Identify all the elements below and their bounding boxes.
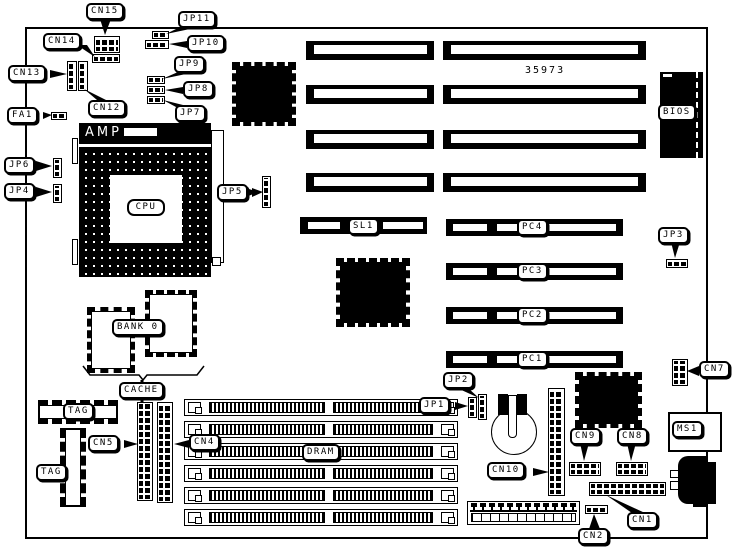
label-jp11: JP11 (178, 11, 216, 28)
label-jp7: JP7 (175, 105, 206, 122)
label-cn9: CN9 (570, 428, 601, 445)
power-connector (467, 501, 580, 525)
amp-window (124, 128, 157, 136)
label-dram: DRAM (302, 444, 340, 461)
jp10-header (145, 40, 169, 49)
chipset-ic-top (232, 62, 296, 126)
label-jp5: JP5 (217, 184, 248, 201)
label-cn5: CN5 (88, 435, 119, 452)
label-cn13: CN13 (8, 65, 46, 82)
motherboard-diagram: AMP CPU 35973 (0, 0, 740, 552)
battery-clip-right (517, 394, 527, 415)
label-jp3: JP3 (658, 227, 689, 244)
cn13-header (67, 61, 77, 91)
bios-pin1-mark (663, 74, 672, 77)
isa-slot-2-short (306, 85, 434, 104)
jp3-jumper (666, 259, 688, 268)
label-tag-left: TAG (36, 464, 67, 481)
power-pin-sockets (471, 513, 576, 522)
label-pc2: PC2 (517, 307, 548, 324)
isa-slot-1-long (443, 41, 646, 60)
cache-sram-chip-left (87, 307, 135, 373)
simm-slot-5 (184, 487, 458, 504)
label-jp8: JP8 (183, 81, 214, 98)
keyboard-pin-upper (670, 470, 679, 478)
label-jp9: JP9 (174, 56, 205, 73)
label-jp4: JP4 (4, 183, 35, 200)
amp-brand-label: AMP (85, 125, 122, 140)
amp-socket-bar: AMP (79, 123, 211, 144)
simm-slot-1 (184, 399, 458, 416)
fa1-jumper (51, 112, 67, 120)
simm-slot-6 (184, 509, 458, 526)
label-bios: BIOS (658, 104, 696, 121)
part-number: 35973 (525, 65, 565, 76)
label-bank0: BANK 0 (112, 319, 164, 336)
isa-slot-3-long (443, 130, 646, 149)
jp9-jumper (147, 76, 165, 84)
cn9-header (569, 462, 601, 476)
cn7-header (672, 359, 688, 386)
keyboard-pin-lower (670, 481, 679, 490)
label-cn15: CN15 (86, 3, 124, 20)
cn14-header (92, 54, 120, 63)
simm-slot-4 (184, 465, 458, 482)
jp2-header (478, 394, 487, 420)
io-controller-ic (575, 372, 642, 428)
power-divider (470, 510, 577, 512)
socket-tab-right-bottom (212, 257, 221, 266)
label-fa1: FA1 (7, 107, 38, 124)
jp8-jumper (147, 86, 165, 94)
cn5-cache-header (137, 402, 153, 501)
socket-tab-left-top (72, 138, 78, 164)
battery-retainer (508, 395, 517, 438)
keyboard-connector-tail (693, 500, 708, 507)
cn4-cache-header (157, 402, 173, 503)
label-cn4: CN4 (189, 434, 220, 451)
label-cn8: CN8 (617, 428, 648, 445)
bios-notch-line (696, 72, 698, 158)
isa-slot-4-short (306, 173, 434, 192)
simm-slot-2 (184, 421, 458, 438)
jp5-header (262, 176, 271, 208)
cn2-jumper (585, 505, 608, 514)
label-cpu: CPU (127, 199, 165, 216)
jp6-jumper (53, 158, 62, 178)
jp1-header (468, 397, 477, 418)
socket-tab-left-bottom (72, 239, 78, 265)
label-jp1: JP1 (419, 397, 450, 414)
label-cn14: CN14 (43, 33, 81, 50)
isa-slot-1-short (306, 41, 434, 60)
label-cn1: CN1 (627, 512, 658, 529)
battery-clip-left (498, 394, 508, 415)
isa-slot-3-short (306, 130, 434, 149)
cn10-header (548, 388, 565, 496)
cn12-header (78, 61, 88, 91)
isa-slot-4-long (443, 173, 646, 192)
jp7-jumper (147, 96, 165, 104)
cn8-header (616, 462, 648, 476)
cn1-header (589, 482, 666, 496)
label-jp6: JP6 (4, 157, 35, 174)
label-pc1: PC1 (517, 351, 548, 368)
label-cn12: CN12 (88, 100, 126, 117)
label-jp10: JP10 (187, 35, 225, 52)
label-sl1: SL1 (348, 218, 379, 235)
jp11-jumper (152, 31, 169, 39)
label-cn10: CN10 (487, 462, 525, 479)
label-pc3: PC3 (517, 263, 548, 280)
label-cn2: CN2 (578, 528, 609, 545)
label-pc4: PC4 (517, 219, 548, 236)
chipset-ic-middle (336, 258, 410, 327)
label-cn7: CN7 (699, 361, 730, 378)
isa-slot-2-long (443, 85, 646, 104)
label-cache: CACHE (119, 382, 164, 399)
cn15-header (94, 36, 120, 53)
label-jp2: JP2 (443, 372, 474, 389)
jp4-jumper (53, 184, 62, 203)
label-tag-top: TAG (63, 403, 94, 420)
label-ms1: MS1 (672, 421, 703, 438)
keyboard-connector-body (700, 462, 716, 504)
